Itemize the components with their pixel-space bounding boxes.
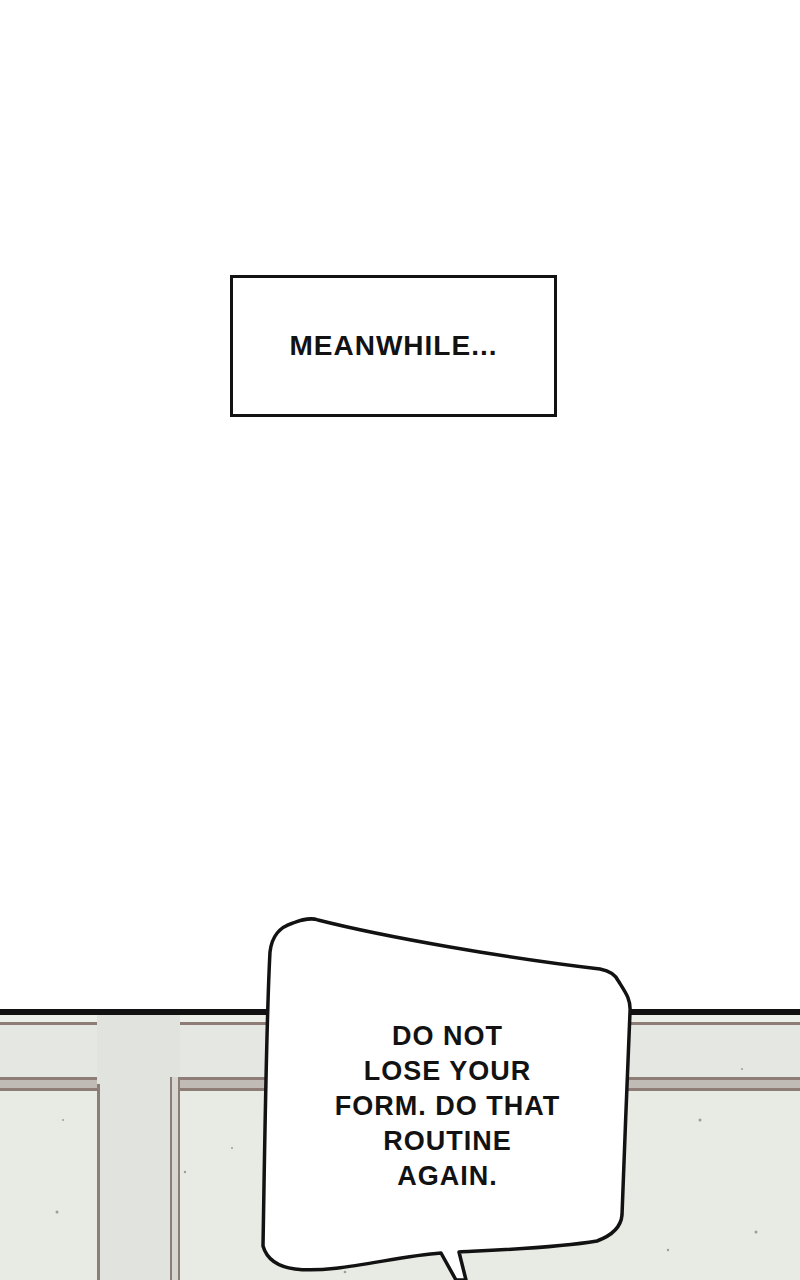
speech-line: AGAIN.	[295, 1159, 600, 1194]
pillar-edge-left	[97, 1084, 100, 1280]
speech-bubble-text: DO NOT LOSE YOUR FORM. DO THAT ROUTINE A…	[295, 1019, 600, 1194]
comic-page: MEANWHILE...	[0, 0, 800, 1280]
caption-text: MEANWHILE...	[290, 330, 498, 362]
pillar-shade-edge-left	[170, 1077, 172, 1280]
speech-line: DO NOT	[295, 1019, 600, 1054]
speech-line: FORM. DO THAT	[295, 1089, 600, 1124]
speech-line: ROUTINE	[295, 1124, 600, 1159]
speech-line: LOSE YOUR	[295, 1054, 600, 1089]
pillar-shade-edge-right	[178, 1077, 180, 1280]
caption-box: MEANWHILE...	[230, 275, 557, 417]
pillar	[97, 1015, 180, 1280]
